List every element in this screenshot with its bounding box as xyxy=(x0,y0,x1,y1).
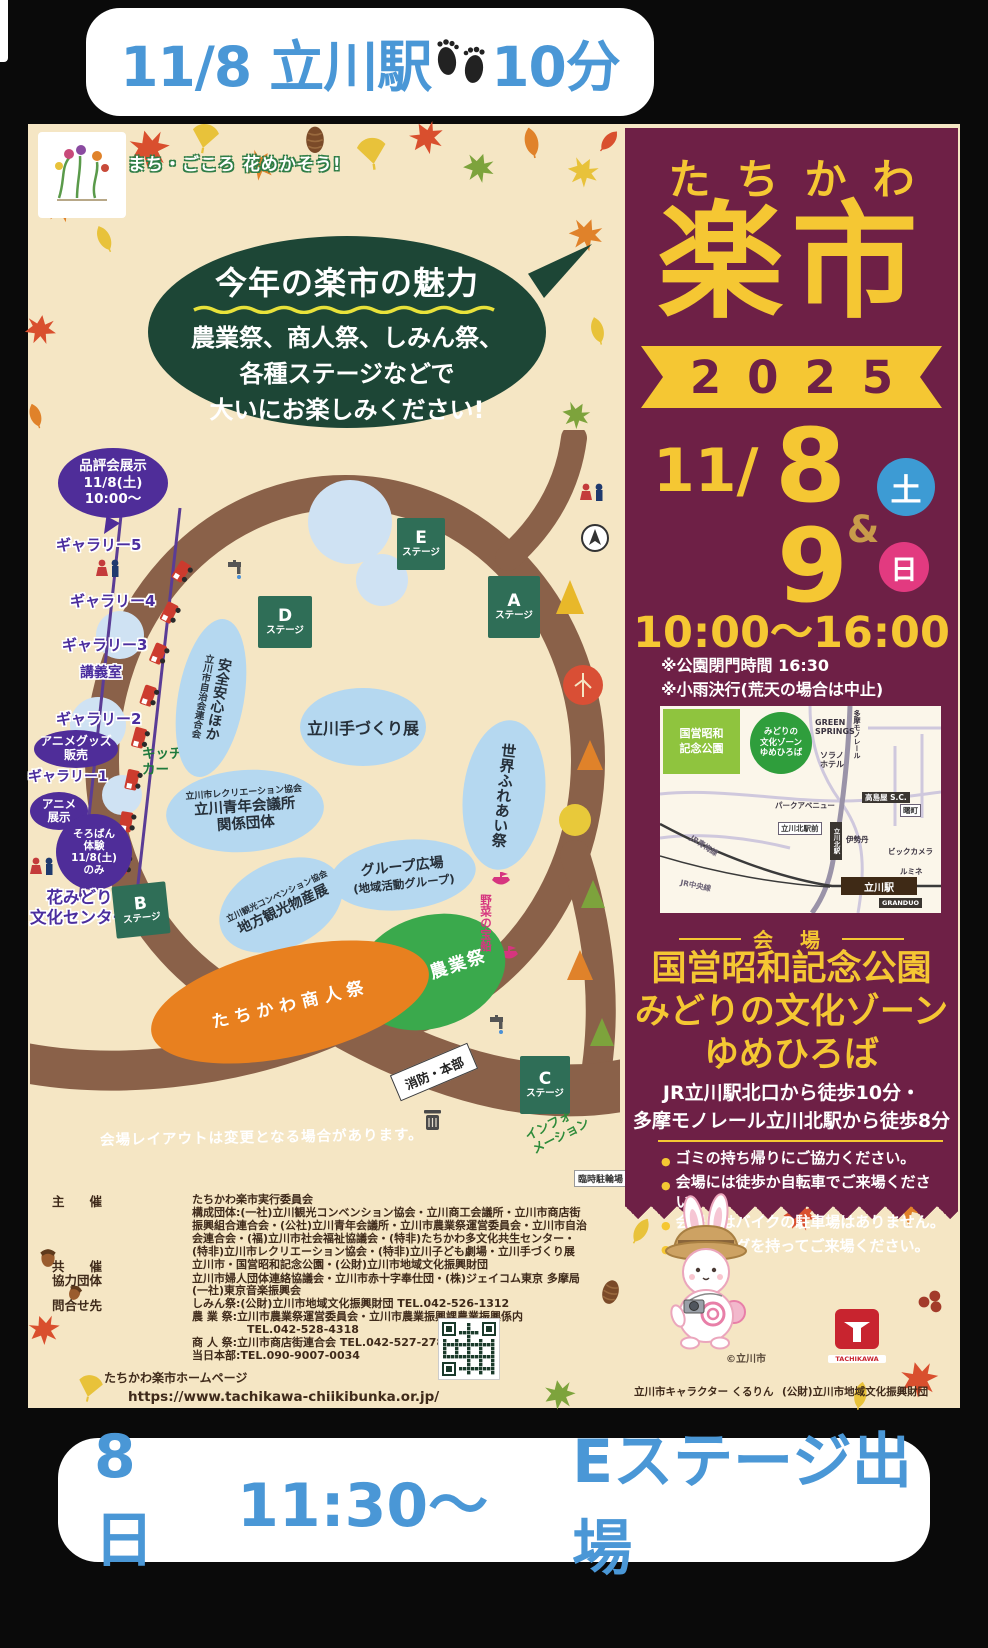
sunday-badge: 日 xyxy=(879,542,929,592)
host-detail: 構成団体:(一社)立川観光コンベンション協会・立川商工会議所・立川市商店街 振興… xyxy=(192,1207,612,1259)
footprints-icon xyxy=(433,35,489,89)
stage-e: Eステージ xyxy=(397,518,445,570)
soroban-bubble: そろばん 体験 11/8(土) のみ xyxy=(56,814,132,890)
support-row: 協力団体 立川市婦人団体連絡協議会・立川市赤十字奉仕団・(株)ジェイコム東京 多… xyxy=(52,1273,612,1299)
date-month: 11/ xyxy=(653,436,758,506)
top-banner-text: 11/8 立川駅 xyxy=(120,22,431,102)
highlight-title: 今年の楽市の魅力 xyxy=(148,236,546,304)
gallery3-label: ギャラリー3 xyxy=(62,634,147,655)
date-day1: 8 xyxy=(775,416,846,518)
stage-d: Dステージ xyxy=(258,596,312,648)
zone-circle: みどりの 文化ゾーン ゆめひろば xyxy=(750,712,812,774)
year-ribbon: 2025 xyxy=(641,346,942,408)
homepage-url: https://www.tachikawa-chiikibunka.or.jp/ xyxy=(128,1389,612,1405)
gallery1-label: ギャラリー1 xyxy=(28,766,108,786)
gallery5-label: ギャラリー5 xyxy=(56,534,141,555)
gallery2-label: ギャラリー2 xyxy=(56,708,141,729)
temp-bicycle-parking-label: 臨時駐輪場 xyxy=(574,1170,627,1187)
homepage-label: たちかわ楽市ホームページ xyxy=(104,1369,612,1386)
kita-station-label: 立川北駅 xyxy=(830,822,842,860)
kita-front-label: 立川北駅前 xyxy=(778,822,822,835)
sorano-label: ソラノ ホテル xyxy=(820,751,844,769)
host-row: 主 催 たちかわ楽市実行委員会構成団体:(一社)立川観光コンベンション協会・立川… xyxy=(52,1194,612,1259)
wavy-underline xyxy=(148,304,546,314)
ampersand: & xyxy=(847,508,879,551)
compass-icon xyxy=(582,525,608,551)
bottom-banner-time: 11:30〜 xyxy=(237,1457,488,1544)
screen: まち・ごころ 花めかそう! 今年の楽市の魅力 農業祭、商人祭、しみん祭、 各種ス… xyxy=(0,0,988,1648)
support-names: 立川市婦人団体連絡協議会・立川市赤十字奉仕団・(株)ジェイコム東京 多摩局 (一… xyxy=(192,1273,612,1299)
note-item: ゴミの持ち帰りにご協力ください。 xyxy=(661,1148,958,1172)
park-block: 国営昭和 記念公園 xyxy=(663,709,740,774)
tachikawa-logo-text: TACHIKAWA xyxy=(828,1355,886,1363)
saturday-badge: 土 xyxy=(877,458,935,516)
granduo-label: GRANDUO xyxy=(879,898,922,908)
screen-edge-artifact xyxy=(0,0,8,62)
logo-flowers-icon xyxy=(47,140,117,210)
park-avenue-label: パークアベニュー xyxy=(775,802,835,811)
note-gate: ※公園閉門時間 16:30 xyxy=(661,652,829,676)
access-map: 国営昭和 記念公園 みどりの 文化ゾーン ゆめひろば GREEN SPRINGS… xyxy=(660,706,941,913)
note-rain: ※小雨決行(荒天の場合は中止) xyxy=(661,676,883,700)
lecture-room-label: 講義室 xyxy=(80,662,122,682)
stage-b: Bステージ xyxy=(111,881,170,938)
copyright-label: ©立川市 xyxy=(726,1350,766,1365)
foundation-caption: (公財)立川市地域文化振興財団 xyxy=(782,1384,928,1399)
tachikawa-logo: TACHIKAWA xyxy=(828,1308,886,1363)
mascot-caption: 立川市キャラクター くるりん xyxy=(634,1384,774,1399)
host-name: たちかわ楽市実行委員会 xyxy=(192,1194,612,1207)
gallery4-label: ギャラリー4 xyxy=(70,590,155,611)
tachikawa-logo-icon xyxy=(834,1308,880,1350)
bottom-banner-date: 8日 xyxy=(94,1422,185,1579)
cohost-row: 共 催 立川市・国営昭和記念公園・(公財)立川市地域文化振興財団 xyxy=(52,1259,612,1273)
kururin-mascot xyxy=(616,1190,811,1355)
lumine-label: ルミネ xyxy=(900,868,923,877)
highlight-body: 農業祭、商人祭、しみん祭、 各種ステージなどで 大いにお楽しみください! xyxy=(148,320,546,428)
bic-camera-label: ビックカメラ xyxy=(888,848,933,857)
tezukuri-area: 立川手づくり展 xyxy=(300,688,426,766)
green-springs-label: GREEN SPRINGS xyxy=(815,718,855,736)
poster-slogan: まち・ごころ 花めかそう! xyxy=(128,150,342,175)
qr-code xyxy=(438,1318,500,1380)
contact-detail: しみん祭:(公財)立川市地域文化振興財団 TEL.042-526-1312 農 … xyxy=(192,1298,612,1363)
hanamekasou-logo xyxy=(38,132,126,218)
event-time: 10:00〜16:00 xyxy=(625,598,958,660)
highlight-bubble: 今年の楽市の魅力 農業祭、商人祭、しみん祭、 各種ステージなどで 大いにお楽しみ… xyxy=(148,236,546,428)
top-banner-minutes: 10分 xyxy=(491,22,620,102)
bottom-banner-stage: Eステージ出場 xyxy=(572,1413,930,1587)
exhibit-bubble: 品評会展示 11/8(土) 10:00〜 xyxy=(58,448,168,518)
contact-row: 問合せ先 しみん祭:(公財)立川市地域文化振興財団 TEL.042-526-13… xyxy=(52,1298,612,1363)
organizer-block: 主 催 たちかわ楽市実行委員会構成団体:(一社)立川観光コンベンション協会・立川… xyxy=(52,1194,612,1405)
event-info-panel: たちかわ 楽市 2025 11/ 8 土 & 9 日 10:00〜16:00 ※… xyxy=(625,128,958,1206)
monorail-label: 多摩モノレール xyxy=(853,710,861,802)
trash-bin-icon xyxy=(424,1110,441,1130)
stage-c: Cステージ xyxy=(520,1056,570,1114)
venue-name: 国営昭和記念公園 みどりの文化ゾーン ゆめひろば xyxy=(625,948,958,1077)
bottom-banner: 8日 11:30〜 Eステージ出場 xyxy=(58,1438,930,1562)
akebono-label: 曙町 xyxy=(900,804,921,817)
stage-a: Aステージ xyxy=(488,576,540,638)
top-banner: 11/8 立川駅 10分 xyxy=(86,8,654,116)
anime-goods-bubble: アニメグッズ 販売 xyxy=(34,730,118,768)
tachikawa-station-label: 立川駅 xyxy=(841,877,917,895)
isetan-label: 伊勢丹 xyxy=(846,836,869,845)
panel-divider xyxy=(658,1140,943,1142)
cohost-name: 立川市・国営昭和記念公園・(公財)立川市地域文化振興財団 xyxy=(192,1259,612,1273)
yasai-boat-label: 野菜の宝船 xyxy=(478,894,494,974)
title-main: 楽市 xyxy=(625,194,958,333)
takashimaya-label: 高島屋 S.C. xyxy=(862,792,910,803)
venue-access: JR立川駅北口から徒歩10分・ 多摩モノレール立川北駅から徒歩8分 xyxy=(625,1080,958,1135)
